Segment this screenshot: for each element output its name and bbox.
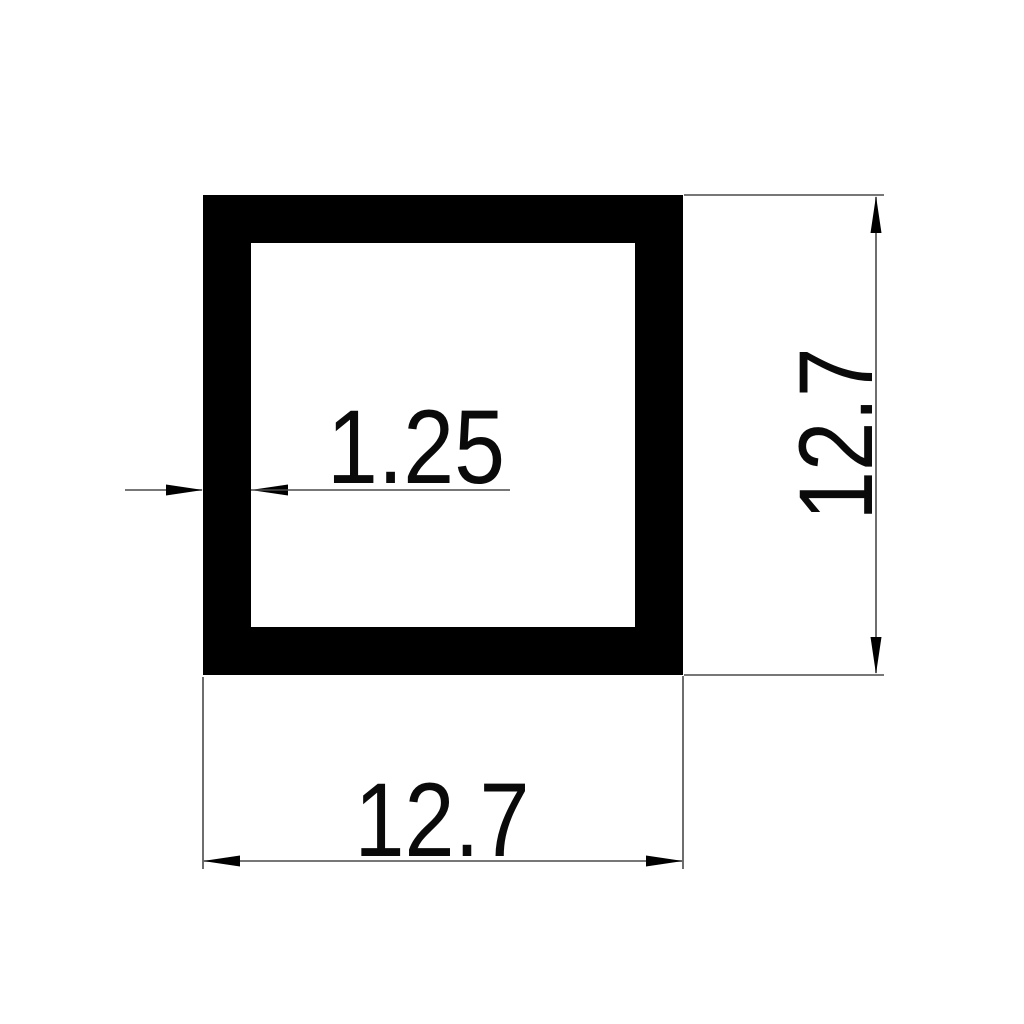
square-tube-drawing: 1.25 12.7 12.7 — [0, 0, 1024, 1024]
width-dimension-label: 12.7 — [355, 762, 530, 879]
height-dim-up-arrow-icon — [871, 196, 882, 233]
height-dimension-label: 12.7 — [778, 348, 895, 521]
wall-dim-outer-arrow-icon — [166, 485, 203, 496]
width-dim-left-arrow-icon — [203, 856, 240, 867]
technical-drawing-canvas: 1.25 12.7 12.7 — [0, 0, 1024, 1024]
wall-thickness-dimension-label: 1.25 — [327, 389, 505, 506]
width-dim-right-arrow-icon — [646, 856, 683, 867]
height-dim-down-arrow-icon — [871, 637, 882, 674]
